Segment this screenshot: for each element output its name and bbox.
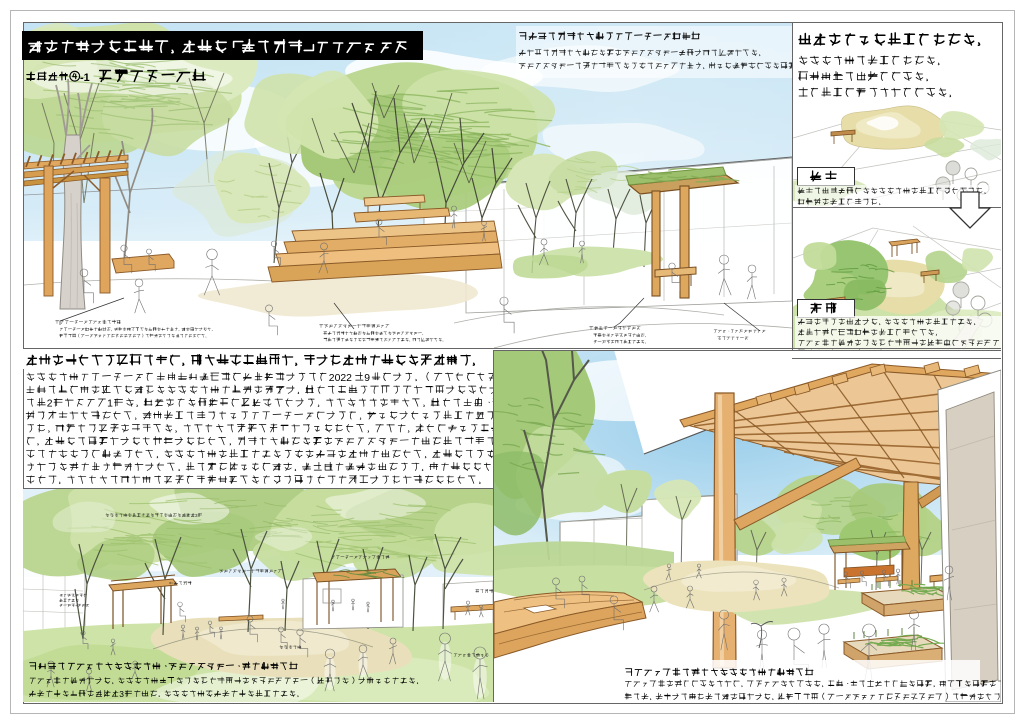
svg-text:3: 3 (195, 513, 198, 518)
svg-text:3: 3 (119, 689, 124, 699)
svg-text:2022: 2022 (329, 373, 352, 384)
svg-text:1: 1 (107, 399, 113, 410)
svg-text:9: 9 (364, 373, 370, 384)
svg-text:-1: -1 (80, 72, 90, 84)
svg-text:2: 2 (47, 399, 53, 410)
